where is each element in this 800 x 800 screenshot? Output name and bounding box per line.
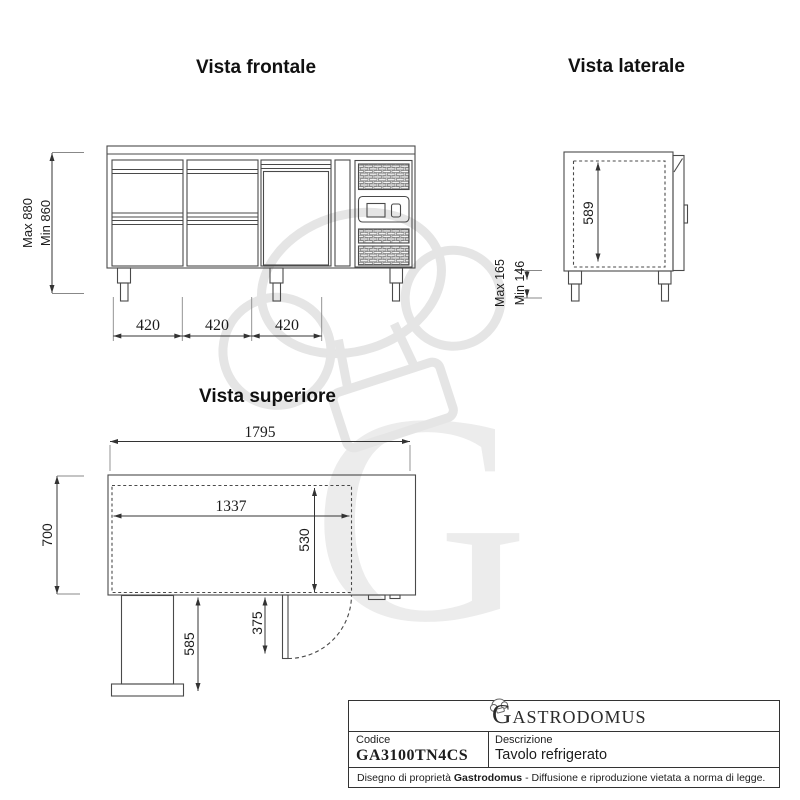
top-view-drawing [108, 475, 416, 696]
dim-side-depth: 589 [581, 193, 595, 233]
copyright-suffix: - Diffusione e riproduzione vietata a no… [522, 772, 765, 784]
top-pedestal-base [112, 684, 184, 696]
side-door-handle [684, 205, 688, 223]
door-swing-arc [288, 595, 352, 659]
top-pedestal [122, 596, 174, 685]
description-cell: Descrizione Tavolo refrigerato [489, 732, 779, 767]
brand-rest: ASTRODOMUS [513, 707, 647, 727]
copyright-brand: Gastrodomus [454, 772, 522, 784]
copyright-notice: Disegno di proprietà Gastrodomus - Diffu… [349, 768, 779, 784]
brand-initial: G [492, 699, 513, 729]
dim-top-inner-depth: 530 [297, 520, 311, 560]
side-view-title: Vista laterale [568, 56, 685, 78]
dim-front-width-3: 420 [267, 317, 307, 335]
vent-grille-middle [359, 229, 410, 243]
dim-front-width-1: 420 [128, 317, 168, 335]
code-label: Codice [356, 734, 488, 746]
copyright-prefix: Disegno di proprietà [357, 772, 454, 784]
dim-front-height-min: Min 860 [39, 188, 53, 258]
title-block-fields-row: Codice GA3100TN4CS Descrizione Tavolo re… [349, 732, 779, 768]
dim-side-leg-min: Min 146 [513, 255, 527, 311]
front-legs [118, 268, 403, 301]
top-hinge-1 [369, 595, 386, 600]
dim-top-total-width: 1795 [240, 424, 280, 442]
top-hinge-2 [390, 595, 400, 599]
top-body [108, 475, 416, 595]
top-open-door [283, 595, 289, 659]
dim-top-door: 375 [250, 603, 264, 643]
dim-top-inner-width: 1337 [211, 498, 251, 516]
drawing-linework [0, 0, 800, 800]
code-value: GA3100TN4CS [356, 747, 488, 765]
dim-top-depth: 700 [40, 515, 54, 555]
dim-top-left-section: 585 [182, 624, 196, 664]
front-filler-panel [335, 160, 350, 266]
dim-front-width-2: 420 [197, 317, 237, 335]
description-value: Tavolo refrigerato [495, 747, 779, 763]
control-button [392, 204, 401, 217]
door-bay [261, 160, 331, 266]
drawer-bay-2 [187, 160, 258, 266]
dim-side-leg-max: Max 165 [493, 255, 507, 311]
drawer-bay-1 [112, 160, 183, 266]
top-view-title: Vista superiore [199, 386, 336, 408]
code-cell: Codice GA3100TN4CS [349, 732, 489, 767]
vent-grille-bottom [359, 246, 410, 265]
front-view-title: Vista frontale [196, 57, 316, 79]
side-door-panel [673, 156, 684, 271]
dim-front-height-max: Max 880 [21, 188, 35, 258]
side-legs [569, 271, 672, 301]
refrigeration-unit [355, 161, 412, 268]
control-panel [359, 197, 410, 223]
vent-grille-top [359, 164, 410, 190]
front-view-drawing [107, 146, 415, 301]
top-view-dimensions [57, 442, 410, 692]
technical-drawing-sheet: G [0, 0, 800, 800]
title-block-logo-row: GASTRODOMUS [349, 701, 779, 732]
title-block: GASTRODOMUS Codice GA3100TN4CS Descrizio… [348, 700, 780, 788]
brand-logo: GASTRODOMUS [492, 699, 647, 730]
control-display [367, 204, 385, 218]
description-label: Descrizione [495, 734, 779, 746]
